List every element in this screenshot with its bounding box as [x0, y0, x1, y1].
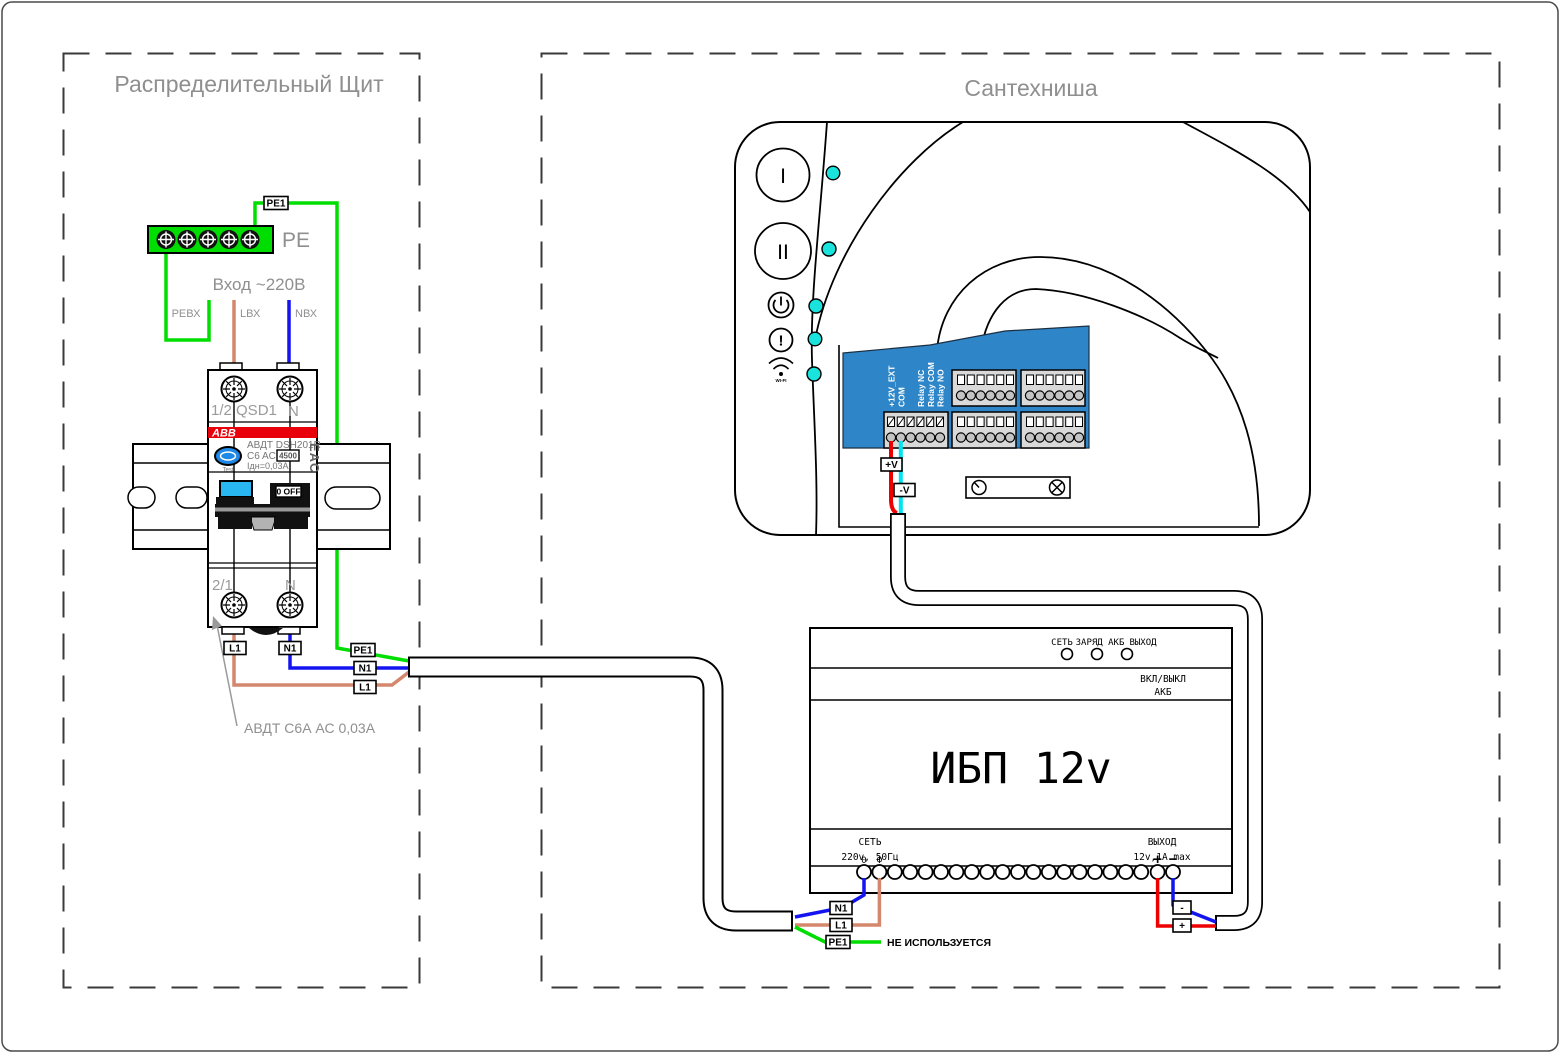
svg-text:L1: L1 [835, 921, 847, 932]
ups-led-label-output: ВЫХОД [1129, 638, 1157, 648]
wire-tag-minus-v: -V [894, 484, 915, 497]
breaker-terminal-n2-label: N [285, 577, 296, 594]
valve-2-button-label: II [777, 241, 789, 264]
ups-output-spec: 12v,1A max [1133, 852, 1190, 863]
ups-led-label-charge: ЗАРЯД АКБ [1076, 638, 1125, 648]
terminal-block [1021, 412, 1085, 448]
breaker-terminal-2-label: 2/1 [212, 577, 233, 594]
valve-2-led [822, 242, 836, 256]
svg-text:PE1: PE1 [354, 646, 373, 657]
breaker-screw-top-right [278, 377, 303, 402]
ups-input-spec: 220v, 50Гц [841, 852, 898, 863]
breaking-capacity-value: 4500 [279, 452, 297, 461]
ups-led-output [1122, 649, 1133, 660]
terminal-block [952, 370, 1016, 406]
terminal-label-relay-no: Relay NO [936, 369, 946, 407]
breaker-terminal-n-label: N [288, 403, 299, 420]
svg-text:N1: N1 [835, 904, 848, 915]
svg-text:L1: L1 [359, 683, 371, 694]
svg-text:+V: +V [885, 460, 898, 471]
breaker-test-button[interactable] [215, 447, 241, 465]
ups-led-label-power: СЕТЬ [1051, 638, 1073, 648]
terminal-block [952, 412, 1016, 448]
wire-tag-n1-cable: N1 [354, 662, 376, 675]
test-button-label: Test [222, 468, 233, 474]
svg-text:-V: -V [900, 486, 910, 497]
ups-led-charge [1092, 649, 1103, 660]
wire-tag-l1-breaker: L1 [224, 642, 246, 655]
pe-bus-bar: PE [148, 226, 310, 253]
n-input-label: NВХ [295, 308, 318, 320]
svg-text:PE1: PE1 [267, 199, 286, 210]
svg-text:PE1: PE1 [829, 938, 848, 949]
wire-tag-l1-cable: L1 [354, 681, 376, 694]
pe-bus-label: PE [282, 229, 310, 252]
ups-output-title: ВЫХОД [1148, 837, 1177, 848]
valve-1-button-label: I [780, 165, 786, 188]
terminal-block [1021, 370, 1085, 406]
ups-battery-switch-label-2: АКБ [1154, 687, 1171, 698]
eac-mark: EAC [307, 443, 322, 473]
svg-text:+: + [1179, 921, 1185, 932]
svg-text:-: - [1180, 903, 1183, 914]
wire-tag-pe1-cable: PE1 [351, 644, 375, 657]
mounting-bracket [966, 477, 1070, 498]
pe-input-label: PEВХ [172, 308, 202, 320]
svg-text:L1: L1 [229, 644, 241, 655]
distribution-zone-title: Распределительный Щит [114, 71, 384, 97]
terminal-block-io [884, 412, 948, 448]
wire-tag-n1-breaker: N1 [279, 642, 301, 655]
l-input-label: LВХ [240, 308, 261, 320]
breaker-leakage-rating: Iдн=0,03A [247, 461, 289, 471]
ups-name: ИБП 12v [930, 744, 1111, 794]
wifi-led [807, 367, 821, 381]
valve-1-led [826, 166, 840, 180]
power-icon [769, 293, 794, 318]
niche-zone-title: Сантехниша [964, 75, 1097, 101]
wire-tag-pe1-ups: PE1 [826, 936, 850, 949]
power-led [809, 299, 823, 313]
ups-input-title: СЕТЬ [859, 837, 882, 848]
pe-not-used-note: НЕ ИСПОЛЬЗУЕТСЯ [887, 937, 991, 949]
terminal-label-com: COM [897, 387, 907, 407]
breaker-annotation-text: АВДТ С6А АС 0,03А [244, 720, 376, 736]
svg-text:!: ! [779, 333, 784, 350]
ups-battery-switch-label-1: ВКЛ/ВЫКЛ [1140, 674, 1186, 685]
breaker-screw-bottom-left [222, 593, 247, 618]
mains-input-label: Вход ~220В [213, 275, 306, 294]
terminal-label-12v: +12V_EXT [887, 365, 897, 407]
wire-tag-plus-ups: + [1173, 919, 1191, 932]
svg-text:N1: N1 [359, 664, 372, 675]
alarm-led [808, 332, 822, 346]
breaker-screw-top-left [222, 377, 247, 402]
wire-tag-pe1-top: PE1 [264, 197, 288, 210]
breaker-terminal-1-label: 1/2 QSD1 [211, 402, 277, 419]
wifi-label: WI-FI [776, 378, 787, 383]
circuit-breaker: 1/2 QSD1 N ABB Test АВДТ DSH201R C6 AC 4… [208, 363, 322, 635]
pe-bus-screws [157, 230, 260, 249]
wire-tag-n1-ups: N1 [830, 902, 852, 915]
svg-text:N1: N1 [284, 644, 297, 655]
ups-terminal-row [857, 865, 1180, 879]
terminal-label-relay-nc: Relay NC [916, 370, 926, 407]
terminal-label-relay-com: Relay COM [926, 362, 936, 407]
breaker-toggle[interactable] [220, 481, 252, 497]
wire-tag-minus-ups: - [1173, 901, 1191, 914]
alarm-icon: ! [770, 329, 793, 352]
wiring-diagram: Распределительный Щит Сантехниша PE Вход… [0, 0, 1560, 1053]
ups-led-power [1062, 649, 1073, 660]
ups-unit: СЕТЬ ЗАРЯД АКБ ВЫХОД ВКЛ/ВЫКЛ АКБ ИБП 12… [810, 628, 1232, 893]
wire-tag-l1-ups: L1 [830, 919, 852, 932]
breaker-brand: ABB [211, 428, 236, 440]
breaker-screw-bottom-right [278, 593, 303, 618]
switch-state-label: 0 OFF [276, 487, 300, 497]
leak-control-unit: I II ! WI-FI [735, 122, 1310, 535]
wire-tag-plus-v: +V [881, 458, 902, 471]
